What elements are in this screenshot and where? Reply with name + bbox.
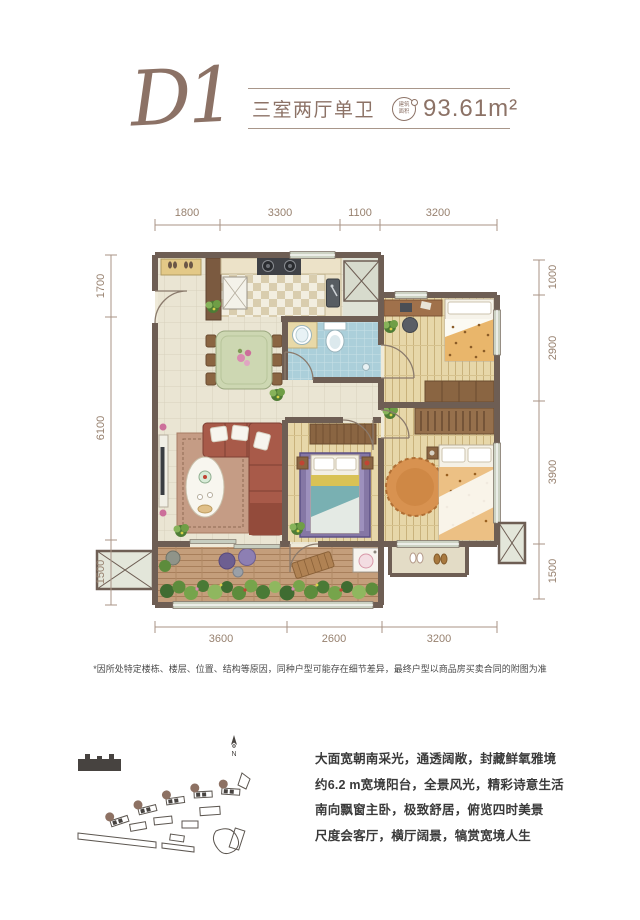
description-line: 约6.2 m宽境阳台，全景风光，精彩诗意生活 — [315, 773, 553, 799]
svg-text:N: N — [231, 751, 236, 758]
svg-text:1500: 1500 — [95, 560, 107, 584]
svg-text:3200: 3200 — [427, 633, 451, 645]
ac-platform-right — [499, 523, 525, 563]
svg-text:1500: 1500 — [547, 559, 559, 583]
area-badge-line2: 面积 — [399, 109, 410, 115]
dining-furniture — [206, 331, 282, 389]
description-line: 尺度会客厅，横厅阔景，犒赏宽境人生 — [315, 824, 553, 850]
terrace-floor — [392, 547, 465, 573]
svg-text:6100: 6100 — [95, 416, 107, 440]
dark-building — [78, 754, 121, 771]
header-block: 三室两厅单卫 建筑 面积 93.61m² — [248, 88, 510, 129]
shaft-box — [344, 261, 379, 301]
site-plan: N — [66, 733, 256, 858]
description-line: 大面宽朝南采光，通透阔敞，封藏鲜氧雅境 — [315, 747, 553, 773]
layout-type-label: 三室两厅单卫 — [248, 95, 375, 122]
svg-text:2900: 2900 — [547, 336, 559, 360]
svg-text:1000: 1000 — [547, 265, 559, 289]
svg-text:2600: 2600 — [322, 633, 346, 645]
area-badge-icon: 建筑 面积 — [392, 97, 416, 121]
svg-text:3300: 3300 — [268, 207, 292, 219]
area-badge-line1: 建筑 — [399, 102, 410, 108]
plan-code: D1 — [114, 55, 248, 140]
description-line: 南向飘窗主卧，极致舒居，俯览四时美景 — [315, 798, 553, 824]
svg-text:3900: 3900 — [547, 460, 559, 484]
floor-plan-rendering: 1800 3300 1100 3200 3600 2600 3200 1700 … — [85, 195, 565, 650]
north-compass-icon: N — [231, 735, 237, 758]
svg-text:1800: 1800 — [175, 207, 199, 219]
description-block: 大面宽朝南采光，通透阔敞，封藏鲜氧雅境 约6.2 m宽境阳台，全景风光，精彩诗意… — [315, 747, 553, 849]
svg-text:3200: 3200 — [426, 207, 450, 219]
svg-text:3600: 3600 — [209, 633, 233, 645]
area-value: 93.61m² — [423, 95, 518, 123]
svg-text:1700: 1700 — [95, 274, 107, 298]
svg-text:1100: 1100 — [348, 207, 372, 219]
disclaimer-note: *因所处特定楼栋、楼层、位置、结构等原因，同种户型可能存在细节差异，最终户型以商… — [0, 662, 640, 675]
